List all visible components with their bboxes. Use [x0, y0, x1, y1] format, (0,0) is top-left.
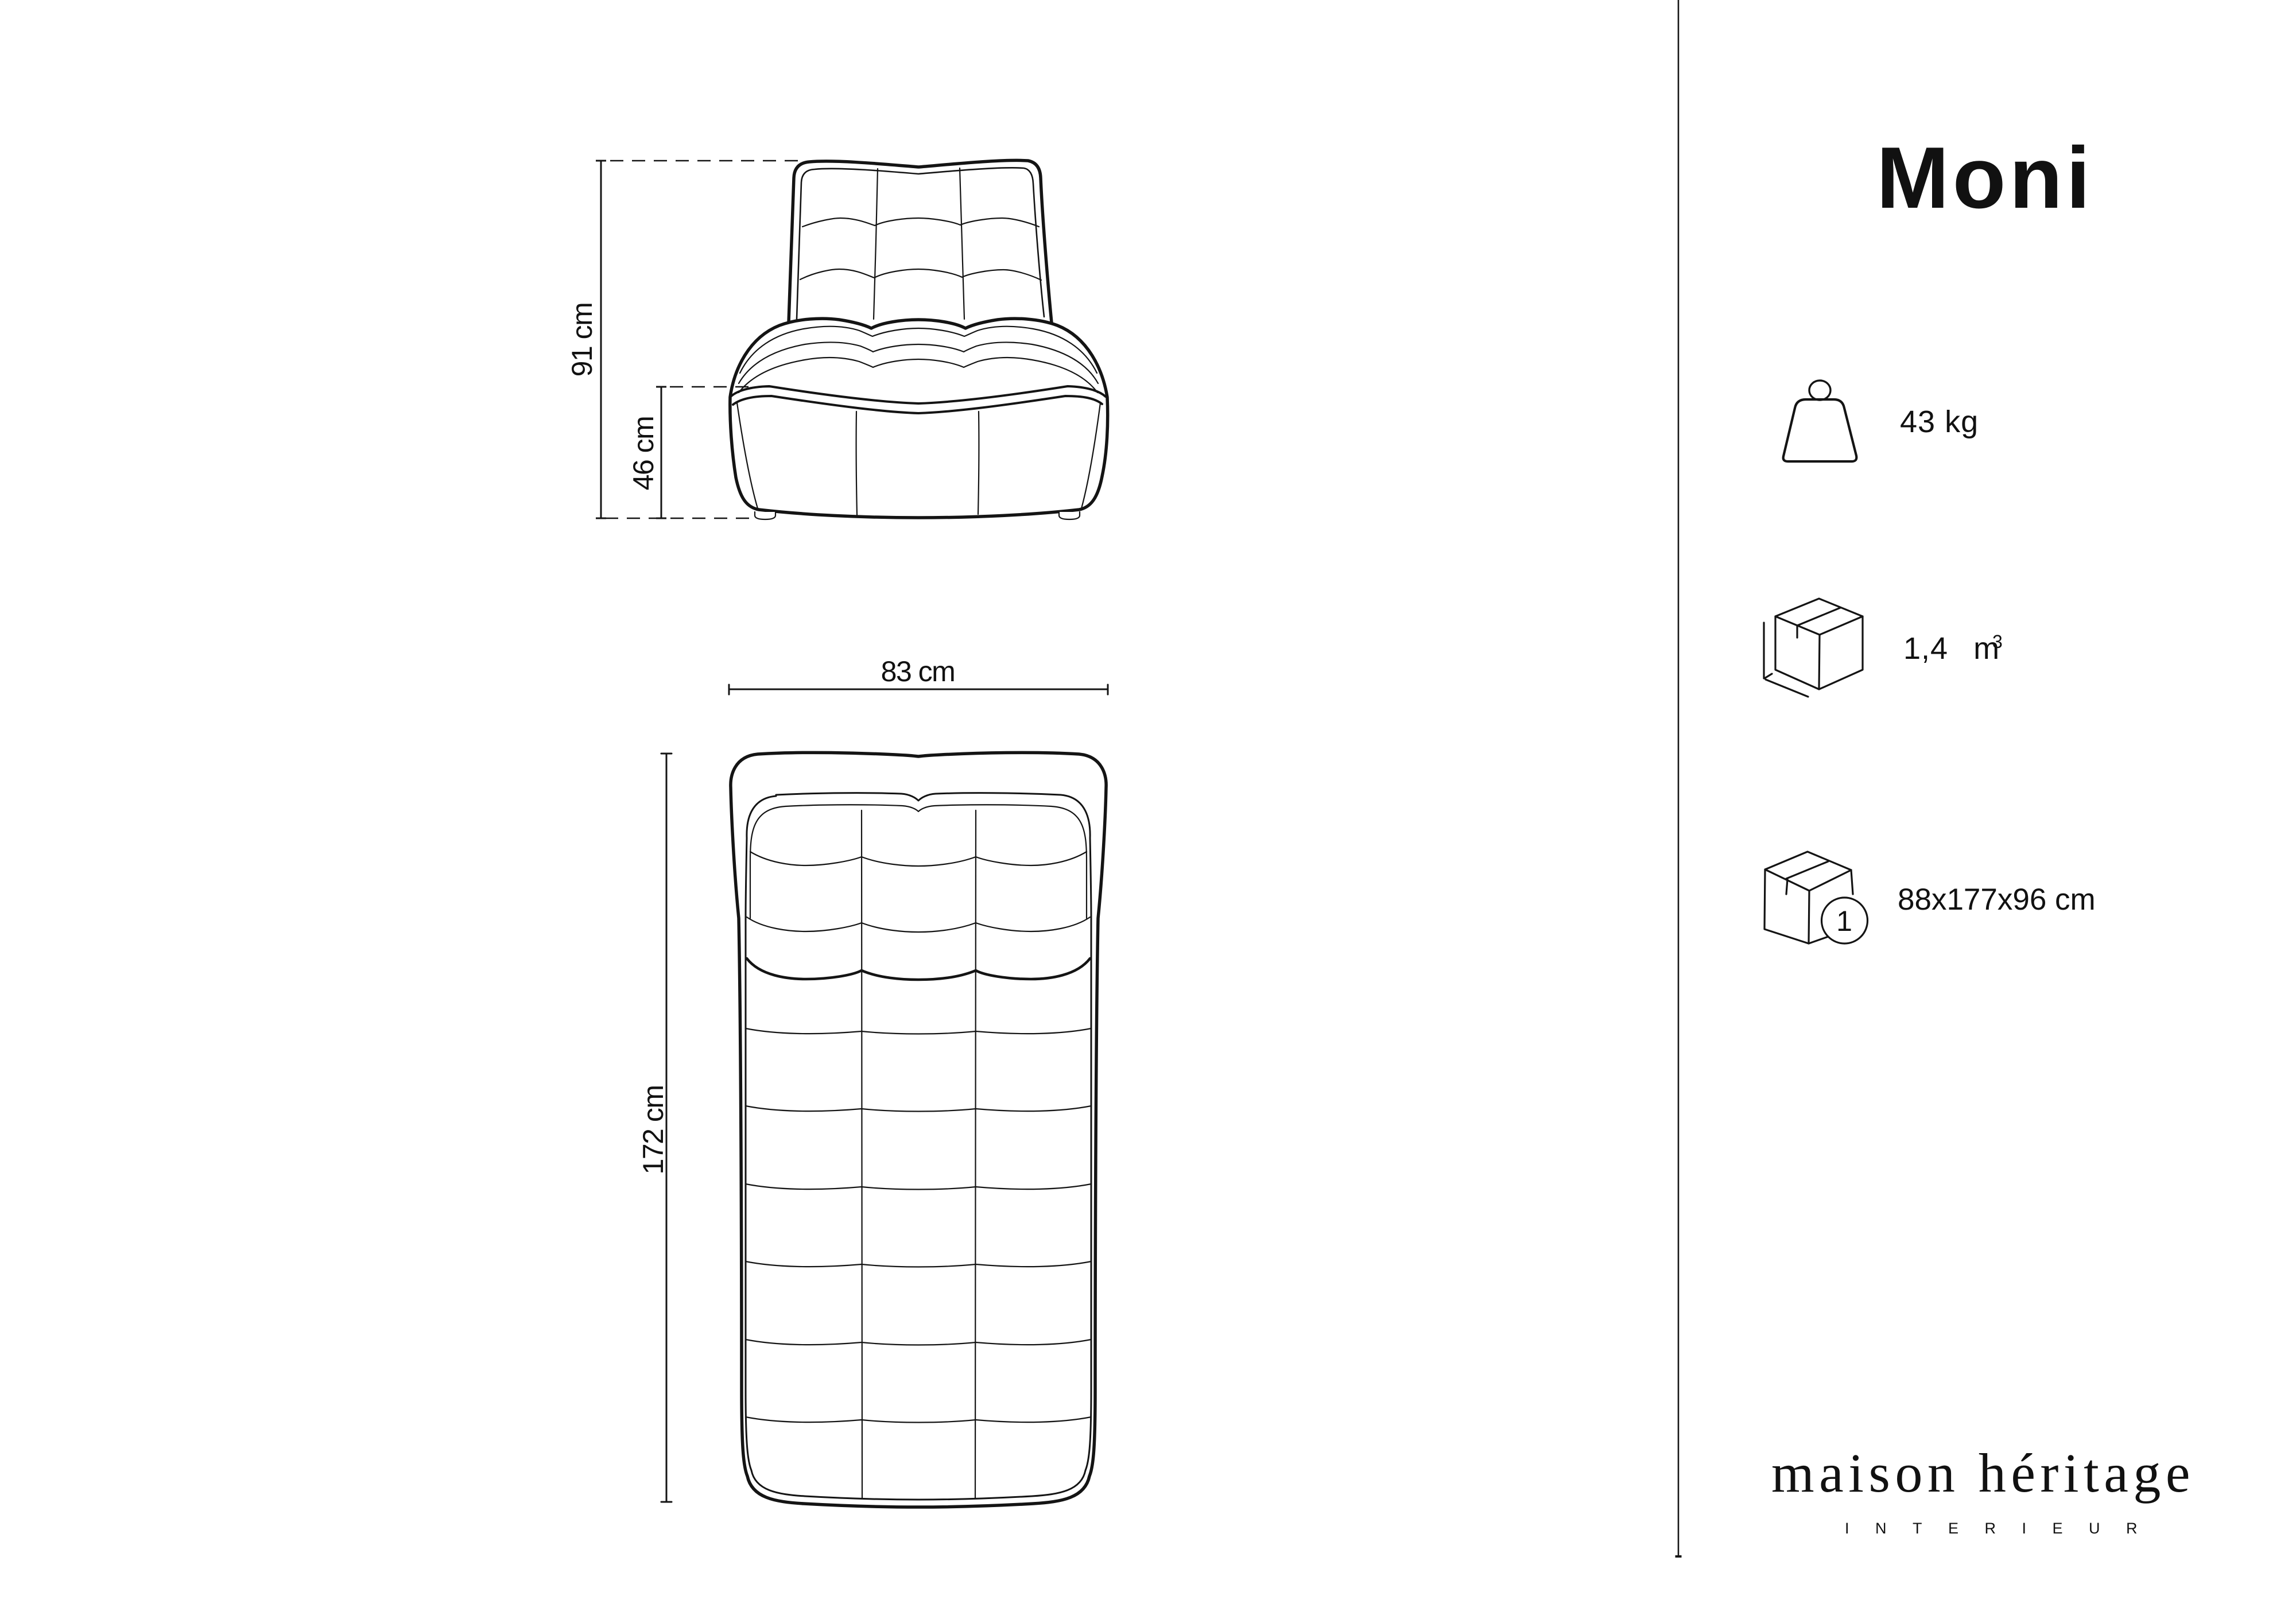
svg-text:INTERIEUR: INTERIEUR [1845, 1520, 2163, 1537]
svg-text:Moni: Moni [1876, 129, 2094, 227]
svg-text:46 cm: 46 cm [627, 417, 660, 491]
svg-text:91 cm: 91 cm [566, 303, 598, 377]
svg-text:172 cm: 172 cm [637, 1086, 669, 1175]
svg-text:88x177x96 cm: 88x177x96 cm [1898, 883, 2096, 917]
svg-text:43 kg: 43 kg [1900, 405, 1979, 439]
svg-text:3: 3 [1992, 631, 2003, 652]
svg-text:maison héritage: maison héritage [1771, 1442, 2195, 1504]
svg-text:1: 1 [1836, 905, 1852, 937]
svg-text:1,4 m: 1,4 m [1903, 631, 2000, 666]
svg-text:83 cm: 83 cm [881, 655, 955, 688]
